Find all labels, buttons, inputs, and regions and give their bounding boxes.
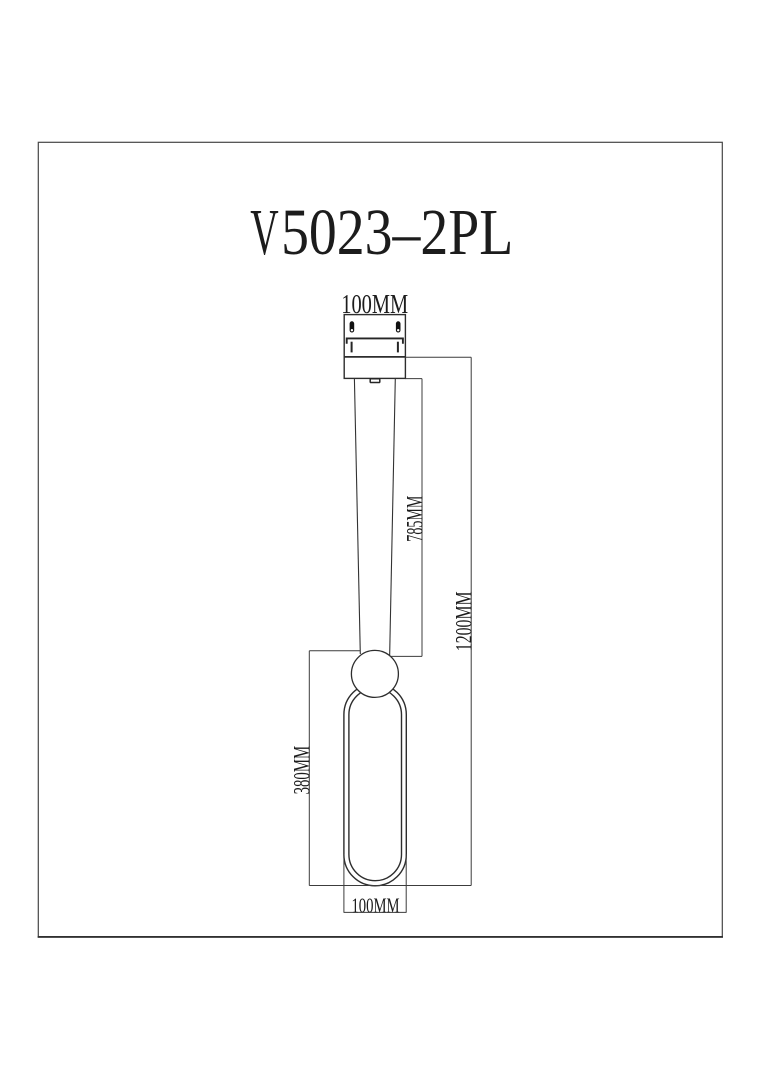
svg-text:5023–2PL: 5023–2PL — [281, 197, 513, 269]
svg-text:380MM: 380MM — [291, 746, 316, 795]
svg-text:V: V — [250, 196, 278, 269]
svg-text:100MM: 100MM — [351, 894, 399, 917]
svg-text:1200MM: 1200MM — [451, 591, 477, 651]
svg-text:785MM: 785MM — [403, 496, 428, 542]
svg-text:100MM: 100MM — [341, 291, 408, 320]
